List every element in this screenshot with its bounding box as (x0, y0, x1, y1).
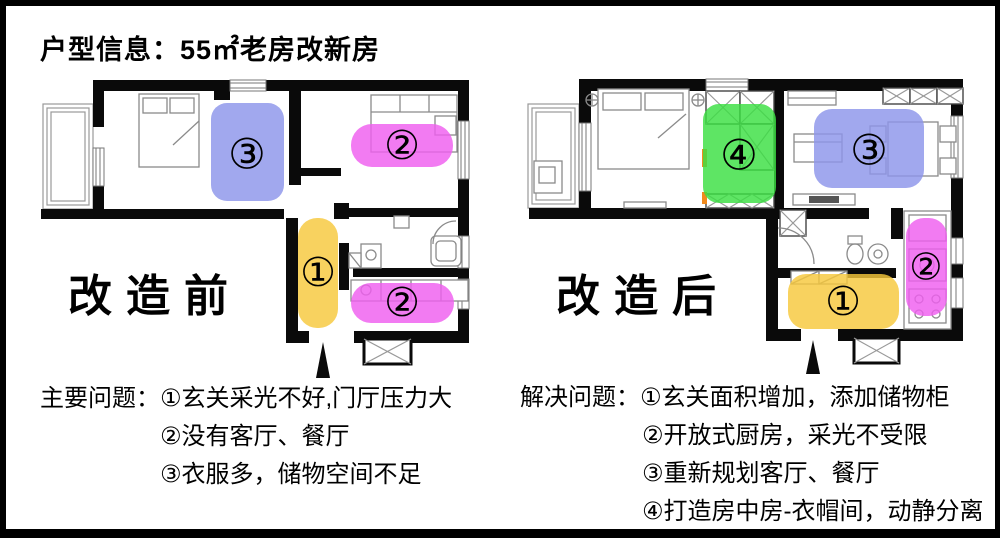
zone-1-number: ① (825, 279, 861, 325)
problem-item-1: ①玄关采光不好,门厅压力大 (160, 385, 452, 412)
solution-item-3: ③重新规划客厅、餐厅 (642, 455, 984, 493)
page-title: 户型信息：55㎡老房改新房 (40, 28, 380, 67)
solutions-list: 解决问题：①玄关面积增加，添加储物柜 ②开放式厨房，采光不受限 ③重新规划客厅、… (520, 379, 984, 531)
problems-heading: 主要问题： (40, 385, 160, 412)
problems-list: 主要问题：①玄关采光不好,门厅压力大 ②没有客厅、餐厅 ③衣服多，储物空间不足 (40, 380, 452, 494)
bed-bedroom (586, 89, 704, 208)
balcony-window (43, 104, 93, 209)
zone-1-entry: ① (788, 274, 899, 329)
floorplan-after: ④ ③ ② ① (526, 66, 971, 376)
problem-item-2: ②没有客厅、餐厅 (160, 418, 452, 456)
zone-2-bottom-number: ② (384, 280, 420, 326)
zone-3-number: ③ (228, 130, 266, 179)
zone-3-living: ③ (814, 109, 924, 188)
zone-4-cloakroom: ④ (703, 104, 776, 203)
utility-shaft (364, 339, 411, 364)
solution-item-2: ②开放式厨房，采光不受限 (642, 417, 984, 455)
solution-item-1: ①玄关面积增加，添加储物柜 (640, 384, 950, 411)
solution-item-4: ④打造房中房-衣帽间，动静分离 (642, 493, 984, 531)
zone-2-number: ② (909, 246, 942, 289)
entrance-arrow (316, 342, 330, 378)
entrance-arrow (806, 340, 820, 374)
balcony-desk (534, 161, 562, 193)
zone-2-kitchen: ② (906, 218, 947, 316)
renovation-infographic: 户型信息：55㎡老房改新房 (0, 0, 1000, 538)
floorplan-before: ③ ② ① ② (36, 74, 476, 379)
bathroom-fixtures (349, 216, 461, 268)
label-after: 改造后 (556, 260, 730, 324)
zone-2-bottom: ② (351, 280, 454, 326)
solutions-heading: 解决问题： (520, 384, 640, 411)
bed-left-bedroom (139, 94, 199, 167)
label-before: 改造前 (68, 260, 242, 324)
zone-1-number: ① (300, 250, 336, 296)
zone-3-closet: ③ (211, 103, 284, 201)
zone-4-number: ④ (720, 131, 758, 180)
zone-2-top-number: ② (384, 123, 420, 169)
zone-1-hallway: ① (298, 218, 338, 328)
zone-2-top: ② (351, 123, 453, 169)
zone-3-number: ③ (850, 126, 888, 175)
problem-item-3: ③衣服多，储物空间不足 (160, 456, 452, 494)
utility-shaft (854, 338, 899, 363)
solutions-line-1: 解决问题：①玄关面积增加，添加储物柜 (520, 379, 984, 417)
problems-line-1: 主要问题：①玄关采光不好,门厅压力大 (40, 380, 452, 418)
